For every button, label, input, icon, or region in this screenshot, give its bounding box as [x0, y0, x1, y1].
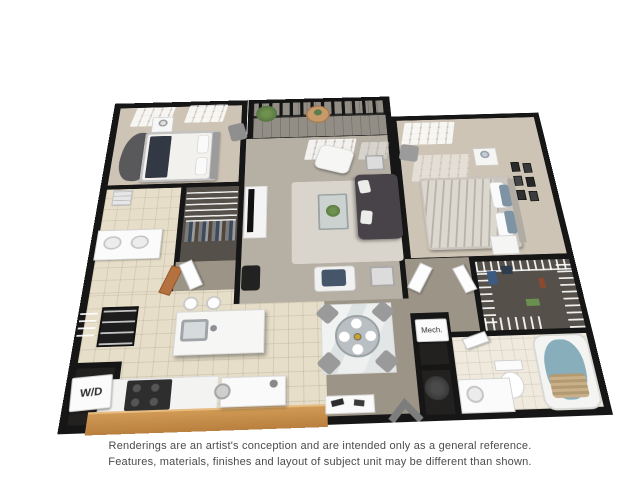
disclaimer-line-1: Renderings are an artist's conception an…	[0, 438, 640, 454]
bath-mat	[549, 373, 591, 398]
console-decor	[354, 399, 365, 406]
side-table	[365, 155, 385, 170]
wall-frame	[510, 162, 520, 172]
pantry-shelving	[96, 306, 139, 347]
disclaimer-line-2: Features, materials, finishes and layout…	[0, 454, 640, 470]
floor-plan: W/D	[57, 93, 613, 435]
disclaimer: Renderings are an artist's conception an…	[0, 438, 640, 470]
toilet-tank	[494, 360, 524, 372]
wall-frame	[513, 176, 524, 186]
window-light	[401, 122, 454, 145]
window-light	[184, 104, 229, 122]
hanging-clothes	[501, 266, 514, 275]
washer-dryer-label-text: W/D	[79, 386, 102, 400]
bed-pillow	[195, 157, 208, 175]
bed-pillow	[196, 135, 209, 154]
chevron-up-icon	[387, 395, 425, 423]
wire-shelving	[484, 316, 548, 331]
folded-clothes	[526, 299, 541, 306]
hanging-clothes	[184, 219, 236, 242]
stove	[124, 379, 173, 411]
mechanical-label-text: Mech.	[421, 326, 443, 335]
sofa-pillow	[360, 210, 373, 224]
washer-dryer-label: W/D	[69, 374, 113, 412]
linen-shelf	[111, 190, 133, 207]
floor-speaker	[241, 265, 261, 291]
kitchen-sink	[180, 319, 209, 342]
table-lamp	[480, 151, 491, 159]
mechanical-label: Mech.	[415, 318, 450, 342]
wire-shelving	[185, 187, 239, 218]
bedroom-chair	[399, 144, 420, 162]
nightstand	[490, 235, 521, 255]
side-table	[369, 266, 395, 287]
ottoman-cushion	[321, 269, 346, 286]
